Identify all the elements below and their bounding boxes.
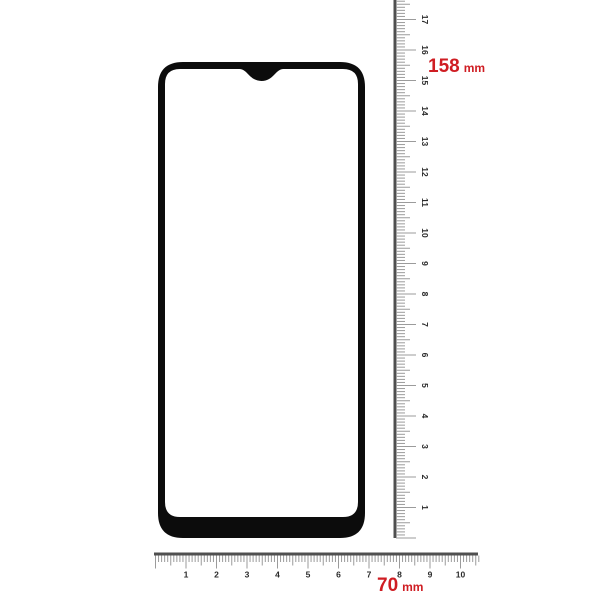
ruler-number: 11 [420, 198, 430, 207]
width-unit: mm [402, 581, 423, 593]
ruler-number: 6 [420, 353, 430, 358]
product-image: 1716151413121110987654321 12345678910 15… [0, 0, 600, 600]
ruler-number: 13 [420, 137, 430, 147]
ruler-number: 15 [420, 76, 430, 86]
ruler-number: 17 [420, 15, 430, 25]
horizontal-ruler: 12345678910 [152, 549, 488, 583]
ruler-number: 3 [420, 444, 430, 449]
height-unit: mm [464, 62, 485, 74]
ruler-number: 9 [420, 261, 430, 266]
ruler-number: 4 [275, 570, 280, 580]
width-value: 70 [377, 576, 398, 595]
width-measurement-label: 70 mm [377, 576, 423, 595]
ruler-number: 10 [420, 228, 430, 238]
ruler-number: 1 [420, 505, 430, 510]
ruler-number: 10 [456, 570, 466, 580]
ruler-number: 3 [245, 570, 250, 580]
ruler-number: 7 [420, 322, 430, 327]
ruler-number: 4 [420, 414, 430, 419]
ruler-number: 9 [428, 570, 433, 580]
glass-border-shape [158, 62, 365, 538]
ruler-number: 6 [336, 570, 341, 580]
ruler-number: 5 [420, 383, 430, 388]
vertical-ruler: 1716151413121110987654321 [385, 0, 450, 545]
height-measurement-label: 158 mm [428, 57, 485, 76]
ruler-number: 16 [420, 45, 430, 55]
ruler-number: 2 [420, 475, 430, 480]
ruler-number: 14 [420, 106, 430, 116]
ruler-number: 8 [420, 292, 430, 297]
ruler-number: 1 [184, 570, 189, 580]
screen-protector-outline [150, 55, 375, 547]
ruler-number: 2 [214, 570, 219, 580]
ruler-number: 5 [306, 570, 311, 580]
height-value: 158 [428, 57, 460, 76]
ruler-number: 12 [420, 167, 430, 177]
ruler-number: 7 [367, 570, 372, 580]
